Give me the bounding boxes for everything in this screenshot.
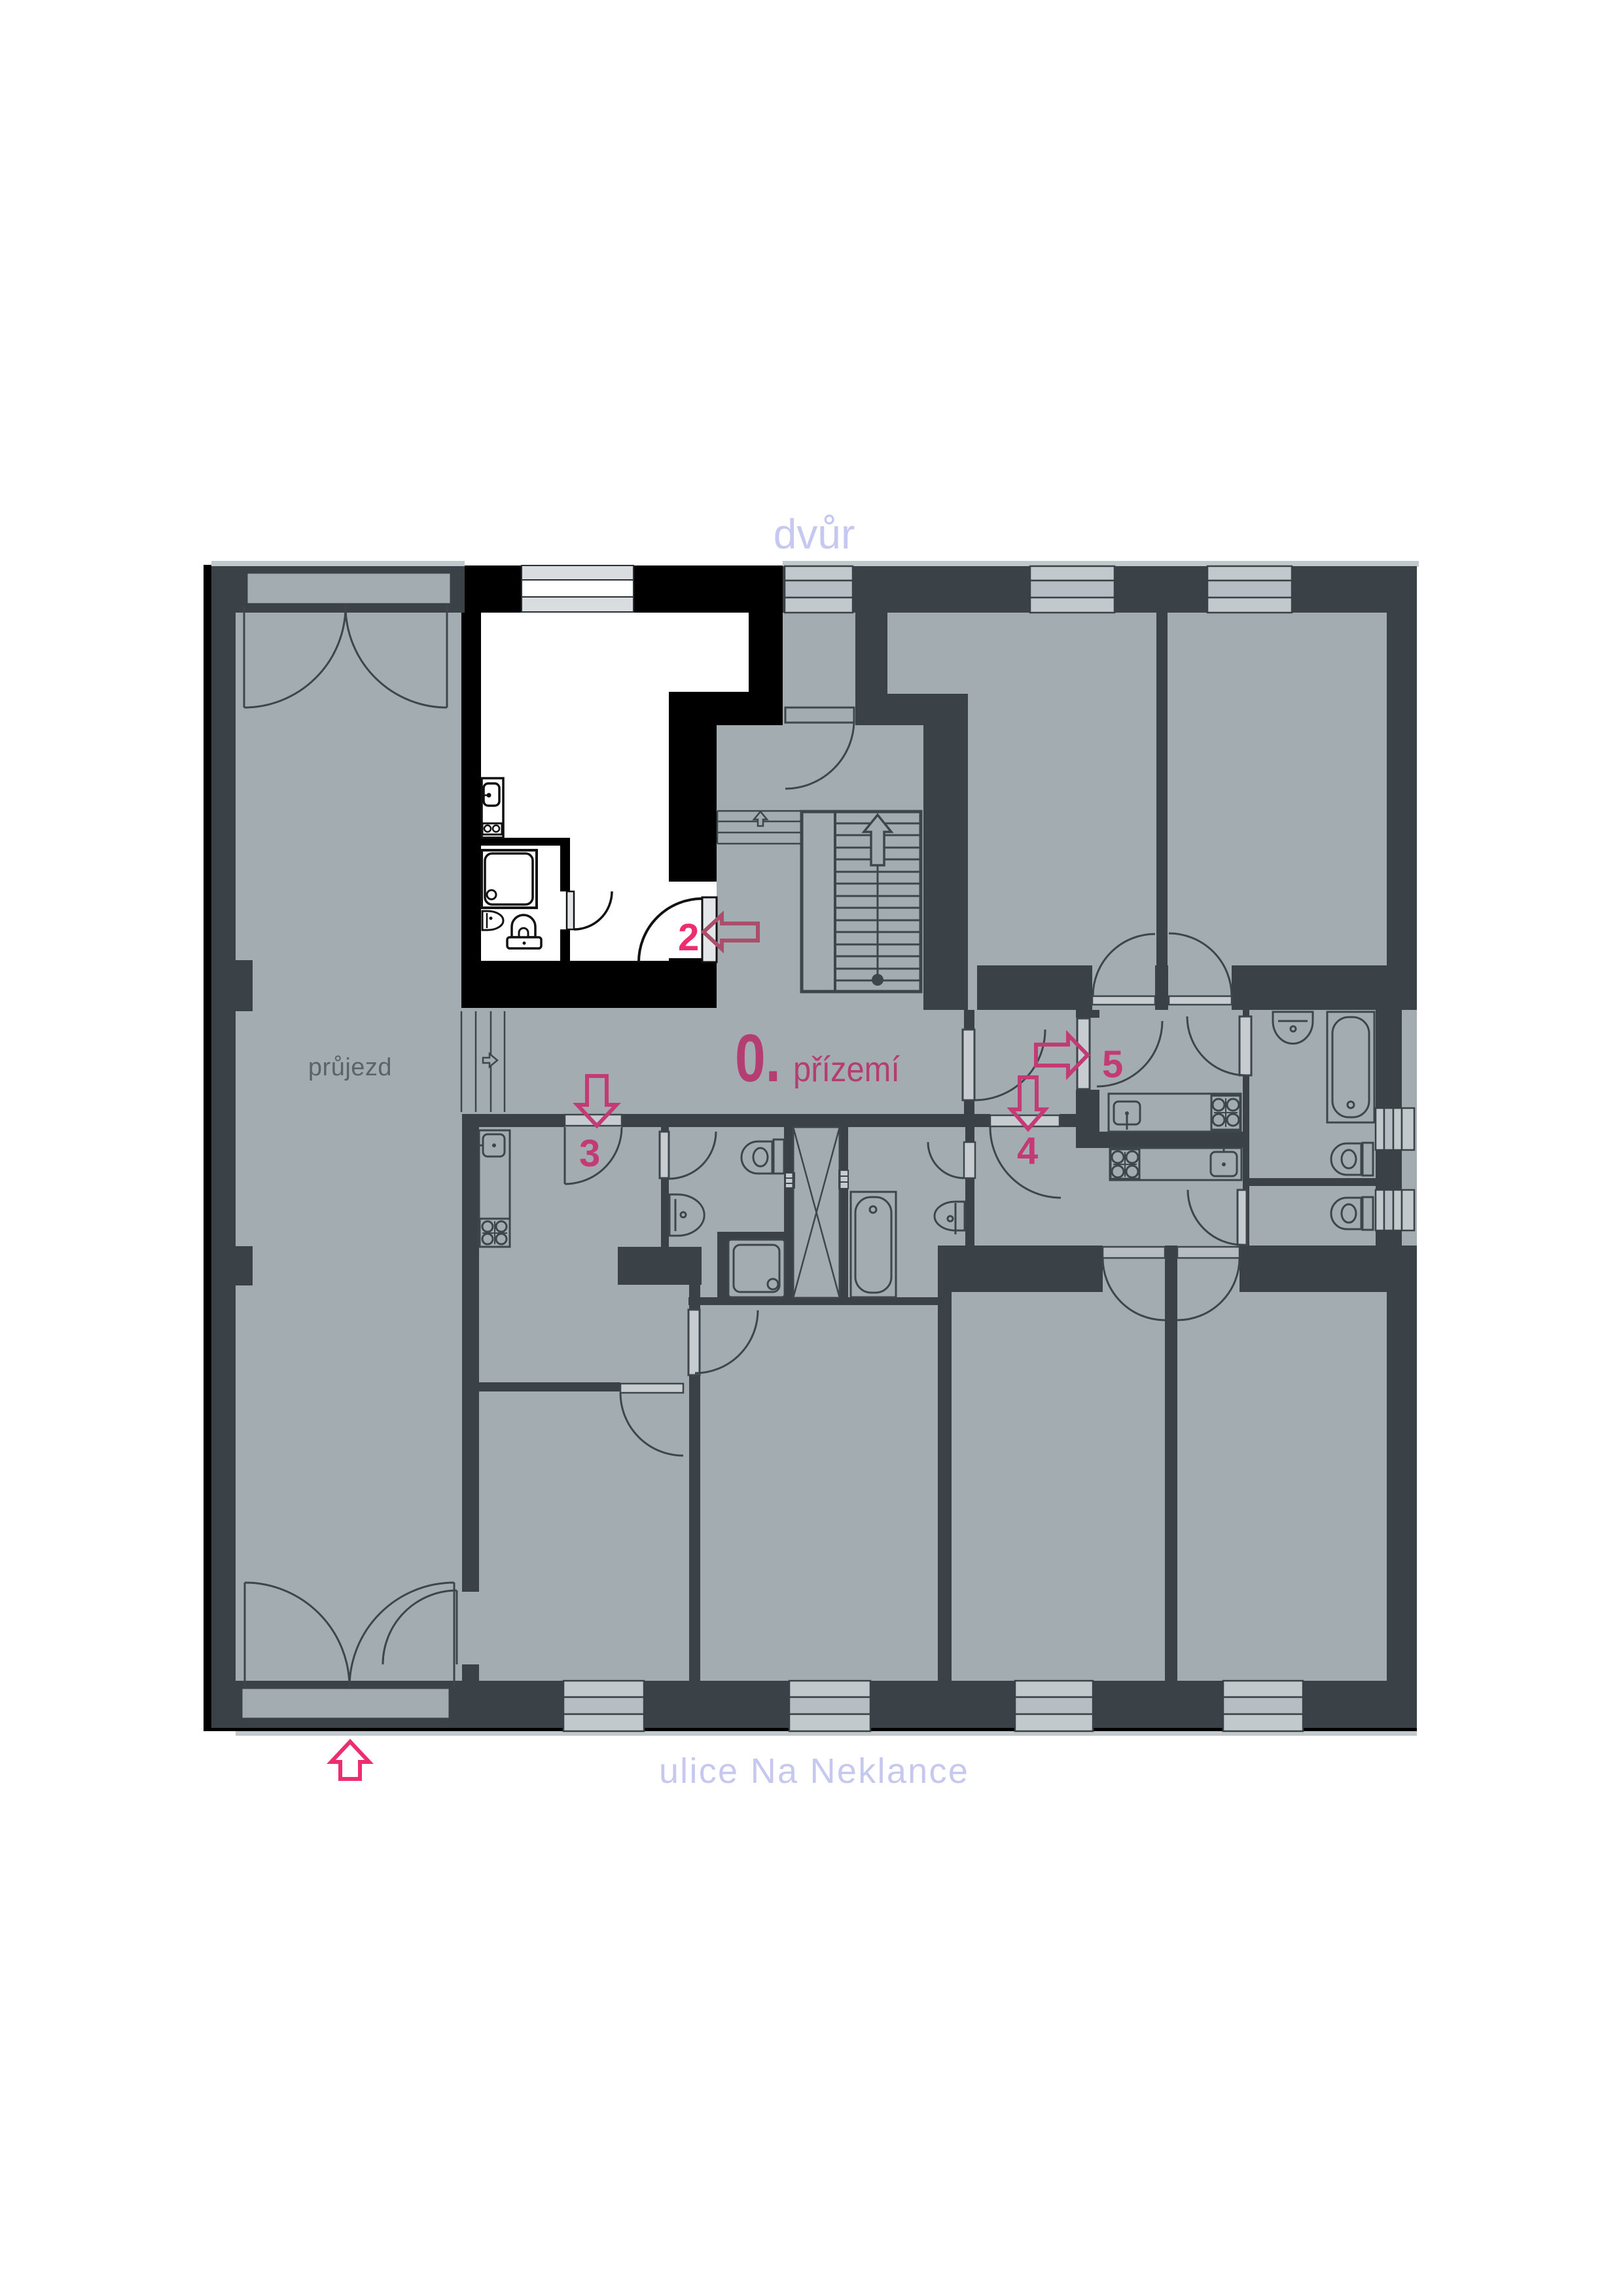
svg-text:0.: 0. [735, 1020, 781, 1096]
svg-text:5: 5 [1102, 1043, 1123, 1086]
svg-text:dvůr: dvůr [774, 511, 855, 558]
svg-text:ulice Na Neklance: ulice Na Neklance [659, 1751, 969, 1791]
svg-text:3: 3 [579, 1132, 600, 1175]
svg-text:přízemí: přízemí [793, 1050, 900, 1089]
svg-text:2: 2 [678, 916, 699, 959]
svg-text:4: 4 [1017, 1130, 1038, 1172]
svg-text:průjezd: průjezd [308, 1054, 392, 1081]
